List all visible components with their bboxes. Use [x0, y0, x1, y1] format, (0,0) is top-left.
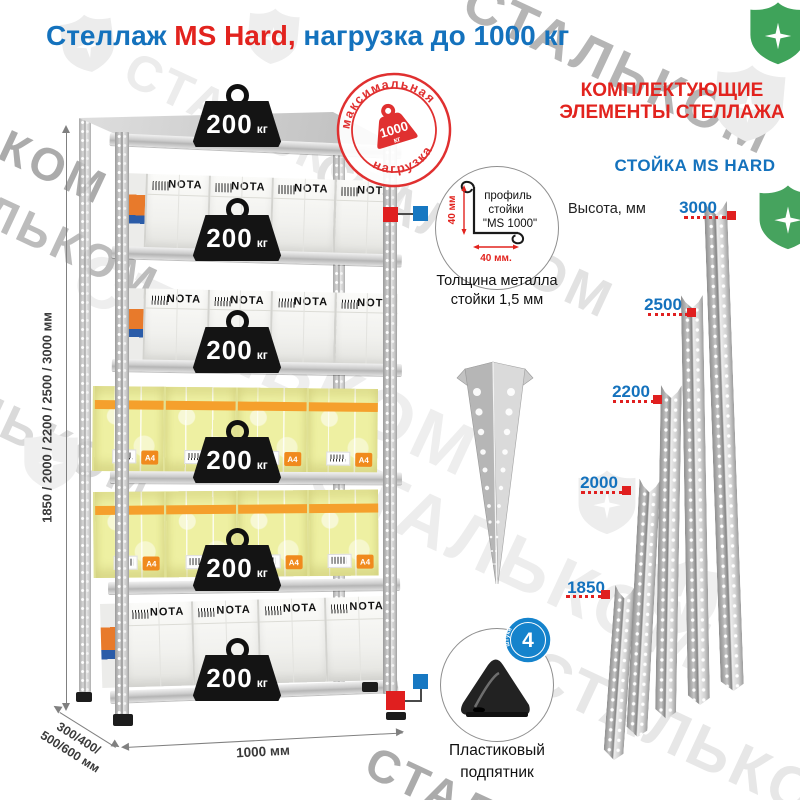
barcode-icon: [216, 183, 232, 192]
foot-label-line-2: подпятник: [407, 762, 587, 784]
metal-thickness-note: Толщина металла стойки 1,5 мм: [397, 272, 597, 310]
components-heading: КОМПЛЕКТУЮЩИЕ ЭЛЕМЕНТЫ СТЕЛЛАЖА: [548, 80, 796, 125]
paper-box: A4: [307, 490, 379, 577]
infographic-canvas: СТАЛЬКОМ СТАЛЬКОМ СТАЛЬКОМ СТАЛЬКОМ СТАЛ…: [0, 0, 800, 800]
badge-number: 4: [522, 629, 534, 652]
barcode-icon: [326, 451, 350, 465]
barcode-icon: [342, 300, 358, 309]
weight-icon: 200кг: [192, 655, 282, 701]
leader-line: [581, 491, 623, 494]
post-height-label-2000: 2000: [578, 473, 620, 493]
rack-post-front-left: [115, 132, 129, 716]
title-part-3: нагрузка до 1000 кг: [296, 20, 570, 51]
profile-callout-line-3: "MS 1000": [483, 218, 537, 230]
box-brand-label: NOTA: [231, 180, 266, 193]
leader-line: [684, 216, 726, 219]
barcode-icon: [153, 181, 169, 190]
paper-size-label: A4: [355, 453, 372, 467]
box-stripe: [309, 402, 378, 412]
paper-size-label: A4: [285, 555, 302, 569]
shield-watermark-icon: [748, 0, 800, 66]
load-value: 200: [206, 445, 252, 476]
load-weight-badge: 200кг: [192, 84, 282, 147]
box-brand-label: NOTA: [150, 606, 185, 619]
load-unit: кг: [257, 566, 268, 580]
box-stripe: [238, 504, 307, 514]
box-brand-label: NOTA: [294, 296, 329, 309]
box-brand-label: NOTA: [216, 604, 251, 617]
post-height-label-3000: 3000: [677, 198, 719, 218]
post-marker: [622, 486, 631, 495]
foot-marker-blue: [413, 674, 428, 689]
load-weight-badge: 200кг: [192, 310, 282, 373]
post-marker: [687, 308, 696, 317]
barcode-icon: [331, 604, 347, 613]
load-value: 200: [206, 223, 252, 254]
barcode-icon: [198, 608, 214, 617]
arrow-icon: [110, 739, 121, 750]
foot-label-line-1: Пластиковый: [407, 740, 587, 762]
storage-box: NOTA: [323, 596, 392, 682]
box-stripe: [95, 505, 164, 515]
post-marker: [653, 395, 662, 404]
barcode-icon: [151, 296, 167, 305]
title-part-1: Стеллаж: [46, 20, 174, 51]
load-value: 200: [206, 663, 252, 694]
corner-post-perspective: [447, 356, 547, 594]
foot-marker-red: [386, 691, 405, 710]
load-unit: кг: [257, 348, 268, 362]
height-caption: Высота, мм: [568, 201, 646, 217]
rack-foot: [113, 714, 133, 726]
height-dimension-label: 1850 / 2000 / 2200 / 2500 / 3000 мм: [40, 273, 55, 563]
load-unit: кг: [257, 676, 268, 690]
load-unit: кг: [257, 458, 268, 472]
shield-watermark-icon: [757, 183, 800, 251]
post-height-label-2200: 2200: [610, 382, 652, 402]
thickness-note-line-1: Толщина металла: [397, 272, 597, 291]
leader-line: [613, 400, 654, 403]
rack-foot: [386, 712, 406, 720]
paper-size-label: A4: [141, 451, 158, 465]
arrow-down-icon: [62, 703, 70, 711]
load-unit: кг: [257, 122, 268, 136]
profile-dim-horizontal: 40 мм.: [480, 253, 512, 264]
barcode-icon: [328, 554, 352, 568]
barcode-icon: [279, 185, 295, 194]
profile-dim-vertical: 40 мм: [447, 196, 458, 225]
rack-foot: [76, 692, 92, 702]
post-height-label-2500: 2500: [642, 295, 684, 315]
box-brand-label: NOTA: [167, 293, 202, 306]
connector-line: [398, 213, 413, 215]
height-dimension-line: [66, 133, 67, 703]
box-brand-label: NOTA: [283, 602, 318, 615]
components-heading-line-1: КОМПЛЕКТУЮЩИЕ: [548, 80, 796, 102]
load-unit: кг: [257, 236, 268, 250]
profile-callout-line-2: стойки: [488, 204, 523, 216]
weight-icon: 200кг: [192, 437, 282, 483]
box-brand-label: NOTA: [349, 600, 384, 613]
weight-icon: 200кг: [192, 545, 282, 591]
title-part-2: MS Hard,: [174, 20, 295, 51]
paper-size-label: A4: [284, 452, 301, 466]
post-section-title: СТОЙКА MS HARD: [575, 156, 800, 176]
box-stripe: [166, 505, 235, 515]
box-brand-label: NOTA: [294, 182, 329, 195]
quantity-badge: штуки 4: [504, 616, 552, 664]
paper-size-label: A4: [357, 555, 374, 569]
thickness-note-line-2: стойки 1,5 мм: [397, 291, 597, 310]
components-heading-line-2: ЭЛЕМЕНТЫ СТЕЛЛАЖА: [548, 102, 796, 124]
connector-line: [404, 700, 422, 702]
profile-callout-line-1: профиль: [484, 190, 532, 202]
arrow-right-icon: [396, 728, 404, 736]
barcode-icon: [132, 610, 148, 619]
post-marker: [727, 211, 736, 220]
post-marker: [601, 590, 610, 599]
weight-icon: 200кг: [192, 215, 282, 261]
box-brand-label: NOTA: [230, 294, 265, 307]
box-stripe: [309, 503, 378, 513]
leader-line: [648, 313, 688, 316]
weight-icon: 200кг: [192, 327, 282, 373]
paper-size-label: A4: [143, 556, 160, 570]
load-weight-badge: 200кг: [192, 528, 282, 591]
load-value: 200: [206, 553, 252, 584]
page-title: Стеллаж MS Hard, нагрузка до 1000 кг: [46, 20, 569, 52]
barcode-icon: [278, 298, 294, 307]
load-value: 200: [206, 335, 252, 366]
width-dimension-label: 1000 мм: [213, 741, 314, 761]
arrow-up-icon: [62, 125, 70, 133]
barcode-icon: [215, 297, 231, 306]
box-stripe: [95, 400, 164, 410]
rack-foot: [362, 682, 378, 692]
box-stripe: [166, 400, 235, 410]
weight-icon: 200кг: [192, 101, 282, 147]
load-value: 200: [206, 109, 252, 140]
load-weight-badge: 200кг: [192, 198, 282, 261]
box-brand-label: NOTA: [168, 178, 203, 191]
load-weight-badge: 200кг: [192, 638, 282, 701]
paper-box: A4: [306, 388, 378, 474]
arrow-left-icon: [121, 743, 129, 751]
profile-marker-red: [383, 207, 398, 222]
plastic-foot-label: Пластиковый подпятник: [407, 740, 587, 785]
barcode-icon: [265, 606, 281, 615]
leader-line: [566, 595, 602, 598]
box-stripe: [237, 401, 306, 411]
rack-post-back-left: [79, 118, 91, 692]
storage-box: NOTA: [124, 601, 193, 687]
load-weight-badge: 200кг: [192, 420, 282, 483]
profile-marker-blue: [413, 206, 428, 221]
